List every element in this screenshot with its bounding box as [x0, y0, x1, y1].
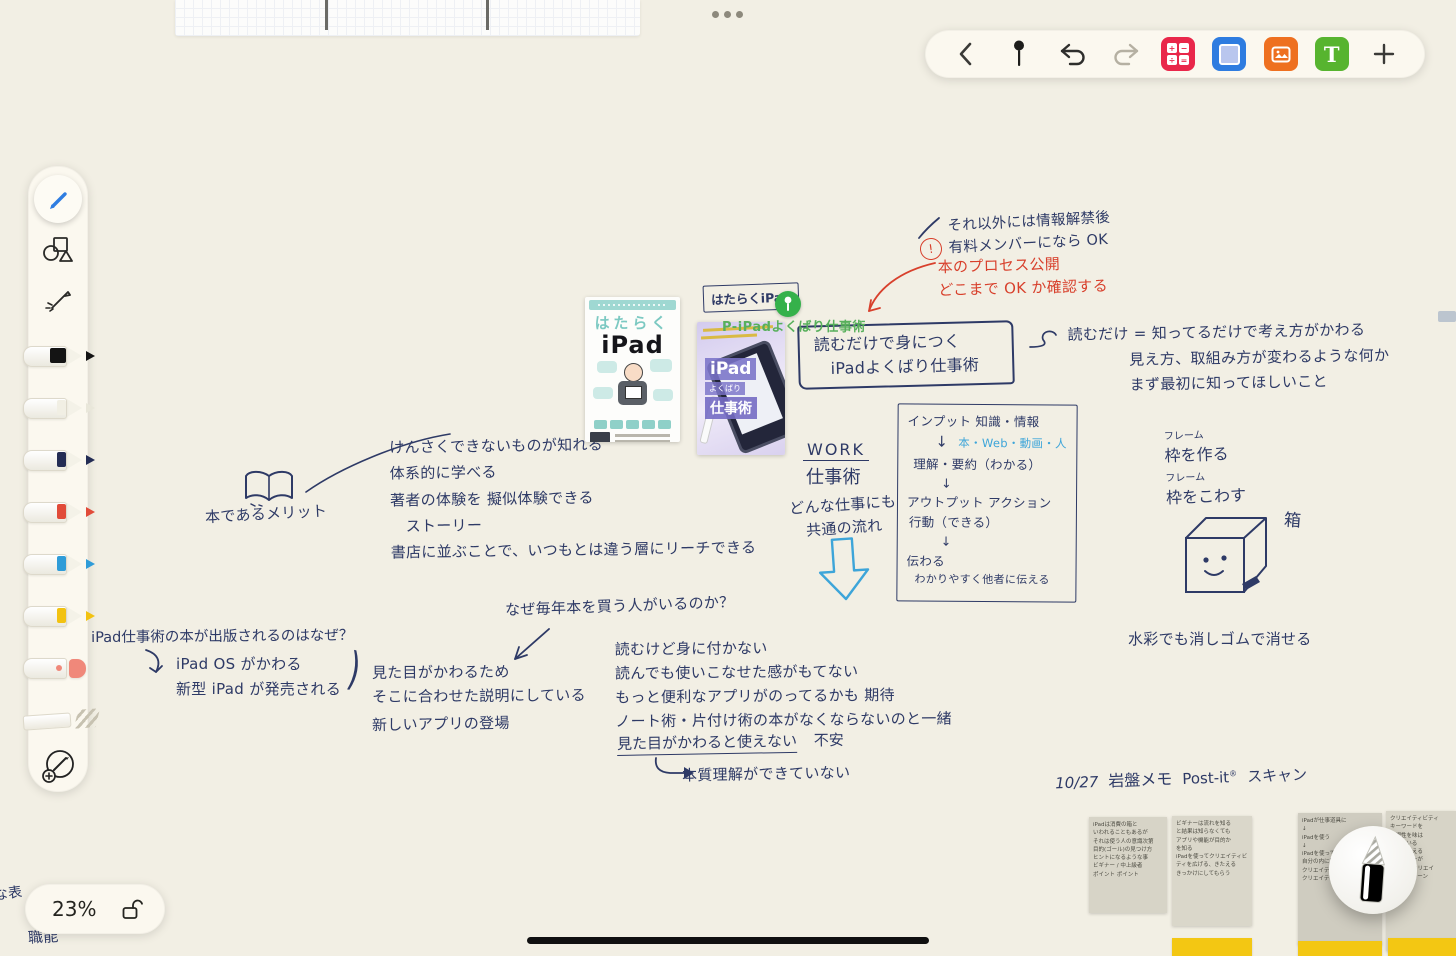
cover-banner — [589, 300, 676, 310]
plus-icon — [1372, 42, 1396, 66]
tool-palette — [28, 166, 88, 792]
dot-icon — [736, 11, 743, 18]
flow-line-convey: 伝わる — [907, 551, 1067, 571]
top-toolbar: + − ÷ = T — [925, 30, 1425, 78]
cover-title-main: iPad — [585, 333, 680, 357]
pin-icon — [1011, 39, 1027, 69]
cover-icon-row — [585, 420, 680, 429]
slice-sparkle-icon — [44, 285, 74, 315]
yellow-sticky-peek[interactable] — [1172, 938, 1252, 956]
scan-brand-wrap: Post-it® — [1182, 768, 1237, 788]
shape-select-tool[interactable] — [42, 235, 74, 267]
ink-merit-label: 本であるメリット — [204, 500, 327, 530]
scan-title: 岩盤メモ — [1108, 765, 1173, 791]
ink-fear-line: 見た目がかわると使えない 不安 — [617, 729, 844, 754]
flat-marker-hatch — [72, 708, 101, 729]
add-brush-tool[interactable] — [40, 747, 78, 789]
graph-paper-object[interactable] — [175, 0, 640, 36]
sticky-note-1[interactable]: iPadは消費の箱と いわれることもあるが それは使う人の意識次第 目的(ゴール… — [1089, 817, 1167, 913]
flow-line-understand: 理解・要約（わかる） — [907, 454, 1067, 474]
blue-outline-arrow — [816, 535, 874, 605]
ink-publish-extra: 新しいアプリの登場 — [372, 712, 510, 738]
scan-date: 10/27 — [1055, 773, 1099, 792]
unlock-icon[interactable] — [120, 896, 144, 922]
ink-scan-label: 10/27 岩盤メモ Post-it® スキャン — [1055, 761, 1308, 794]
eraser-cap — [69, 659, 86, 678]
flow-line-input: インプット 知識・情報 — [908, 411, 1068, 431]
undo-button[interactable] — [1055, 34, 1091, 74]
ink-watercolor-note: 水彩でも消しゴムで消せる — [1128, 628, 1312, 651]
scan-tail: スキャン — [1247, 764, 1308, 787]
home-indicator[interactable] — [527, 937, 929, 944]
flow-line-output: アウトプット アクション — [907, 493, 1067, 513]
flow-sources: 本・Web・動画・人 — [958, 436, 1067, 451]
ink-publish-causes: iPad OS がかわる 新型 iPad が発売される — [176, 652, 341, 702]
slice-tool[interactable] — [44, 285, 74, 319]
ink-process-note: 本のプロセス公開 どこまで OK か確認する — [937, 252, 1108, 303]
ink-read-note: 読むだけ = 知ってるだけで考え方がかわる 見え方、取組み方が変わるような何か … — [1067, 317, 1390, 399]
pen-navy[interactable] — [23, 449, 95, 471]
sticky-note-2[interactable]: ビギナーは流れを知る と結果は知らなくても アプリや機能が目的か を知る iPa… — [1172, 816, 1252, 926]
pen-white[interactable] — [23, 397, 95, 419]
publish-question-text: iPad仕事術の本が出版されるのはなぜ？ — [91, 628, 353, 646]
whiteboard-canvas[interactable]: + − ÷ = T — [0, 0, 1456, 956]
cube-sketch — [1178, 508, 1278, 596]
pen-yellow[interactable] — [23, 605, 95, 627]
cover-footer — [585, 432, 680, 442]
ink-frame-note: フレーム 枠を作る フレーム 枠をこわす — [1164, 425, 1247, 509]
image-app-button[interactable] — [1264, 37, 1298, 71]
curl-arrow — [142, 646, 172, 680]
ink-work-ja: 仕事術 — [806, 464, 861, 492]
clipped-note-fragment — [1438, 311, 1456, 322]
frame-icon — [1219, 44, 1240, 65]
scan-brand: Post-it — [1182, 768, 1229, 788]
add-brush-icon — [40, 747, 78, 785]
current-pen-icon — [1351, 833, 1396, 908]
pin-glyph-icon — [781, 295, 795, 313]
ink-conclusion: 本質理解ができていない — [682, 762, 851, 788]
cover2-title-3: 仕事術 — [705, 397, 757, 419]
redo-icon — [1111, 42, 1141, 66]
eraser-dot — [56, 665, 62, 671]
flow-arrow-1: ↓ — [935, 433, 948, 451]
pen-black[interactable] — [23, 345, 95, 367]
back-button[interactable] — [948, 34, 984, 74]
redo-button[interactable] — [1108, 34, 1144, 74]
image-icon — [1271, 46, 1291, 63]
undo-icon — [1058, 42, 1088, 66]
ink-big-paren: ) — [342, 636, 366, 707]
flow-line-action: 行動（できる） — [907, 512, 1067, 532]
frame-make: 枠を作る — [1164, 440, 1245, 467]
scan-reg-mark: ® — [1229, 769, 1237, 778]
ink-edge-text-1: な表 — [0, 882, 24, 907]
fear-tail: 不安 — [814, 731, 844, 750]
shapes-icon — [42, 235, 74, 263]
ink-publish-question: 年 iPad仕事術の本が出版されるのはなぜ？ — [70, 624, 354, 647]
book-cover-yokubari[interactable]: iPad よくばり 仕事術 — [697, 322, 785, 455]
active-pencil-tool[interactable] — [34, 175, 82, 223]
work-en-text: WORK — [807, 440, 865, 459]
ink-flow-box: インプット 知識・情報 ↓ 本・Web・動画・人 理解・要約（わかる） ↓ アウ… — [896, 403, 1077, 602]
text-app-button[interactable]: T — [1315, 37, 1349, 71]
book-cover-hataraku-ipad[interactable]: はたらく iPad — [585, 297, 680, 442]
dot-icon — [724, 11, 731, 18]
ink-publish-effects: 見た目がかわるため そこに合わせた説明にしている — [372, 659, 586, 709]
pin-tool-button[interactable] — [1001, 34, 1037, 74]
pen-blue[interactable] — [23, 553, 95, 575]
cover2-title-2: よくばり — [705, 382, 745, 395]
flat-marker-body — [23, 712, 72, 730]
calculator-icon: + − ÷ = — [1167, 43, 1189, 65]
table-column-line — [486, 0, 489, 30]
frames-app-button[interactable] — [1212, 37, 1246, 71]
table-column-line — [325, 0, 328, 30]
flow-line-explain: わかりやすく他者に伝える — [906, 570, 1066, 588]
ink-why-buy: なぜ毎年本を買う人がいるのか？ — [505, 591, 735, 622]
map-pin-marker[interactable] — [775, 291, 801, 317]
dot-icon — [712, 11, 719, 18]
ink-hako-label: 箱 — [1283, 507, 1302, 534]
cover-title-kana: はたらく — [585, 312, 680, 333]
back-chevron-icon — [957, 41, 975, 67]
flat-marker-tool[interactable] — [22, 706, 101, 733]
zoom-level[interactable]: 23% — [52, 897, 96, 921]
ink-reasons: 読むけど身に付かない 読んでも使いこなせた感がもてない もっと便利なアプリがのっ… — [615, 635, 952, 734]
calculator-app-button[interactable]: + − ÷ = — [1161, 37, 1195, 71]
yellow-sticky-peek[interactable] — [1298, 941, 1382, 956]
more-options-handle[interactable] — [712, 11, 743, 18]
add-button[interactable] — [1366, 34, 1402, 74]
cover2-title-1: iPad — [705, 358, 756, 380]
red-arrow — [855, 255, 945, 320]
cover-illustration — [585, 357, 680, 419]
eraser-tool[interactable] — [23, 657, 86, 679]
zoom-control[interactable]: 23% — [25, 884, 165, 934]
text-tool-icon: T — [1324, 44, 1340, 65]
pencil-icon — [45, 186, 71, 212]
ink-work-en: WORK — [803, 440, 869, 461]
fear-underlined: 見た目がかわると使えない — [617, 732, 797, 756]
pin-label-text: P-iPadよくばり仕事術 — [722, 318, 866, 338]
flow-arrow-3: ↓ — [907, 532, 1067, 552]
pen-red[interactable] — [23, 501, 95, 523]
flow-arrow-2: ↓ — [907, 473, 1067, 493]
yellow-sticky-peek[interactable] — [1388, 938, 1456, 956]
frame-break: 枠をこわす — [1166, 482, 1247, 509]
active-brush-indicator[interactable] — [1329, 826, 1417, 914]
